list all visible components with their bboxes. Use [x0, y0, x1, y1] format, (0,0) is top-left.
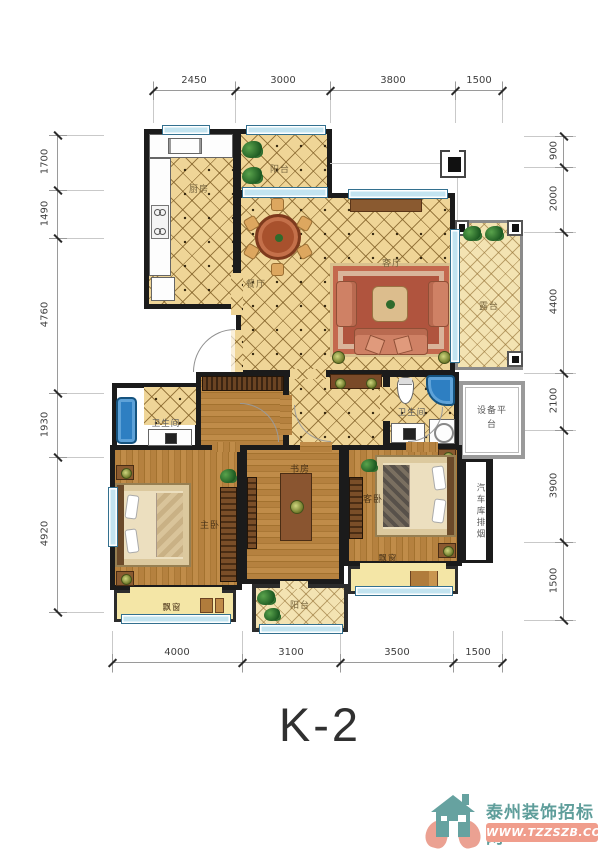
nightstand [438, 543, 456, 558]
plant-icon [361, 459, 377, 472]
dim-label: 1500 [549, 561, 560, 601]
dim-tick [455, 82, 456, 100]
opening-master-bay [130, 587, 222, 595]
label-bath-second: 卫生间 [385, 406, 439, 418]
dim-tick [49, 135, 67, 136]
opening-guest-bay [360, 563, 446, 571]
bath-main-sink [148, 429, 192, 446]
dim-tick [555, 542, 573, 543]
dim-tick [49, 457, 67, 458]
label-study: 书房 [278, 462, 322, 475]
opening-master-door [212, 442, 240, 452]
dim-tick [49, 238, 67, 239]
master-bed [115, 483, 191, 567]
stove-icon [151, 205, 169, 239]
dim-label: 2450 [181, 75, 206, 86]
leader-line [457, 177, 458, 220]
dim-label: 3800 [380, 75, 405, 86]
label-balcony-top: 阳台 [258, 162, 302, 175]
dim-label: 1500 [465, 647, 490, 658]
window [450, 229, 460, 363]
dining-chair [271, 263, 284, 276]
dim-tick [242, 654, 243, 672]
opening-study-door [300, 442, 332, 452]
dim-label: 4000 [164, 647, 189, 658]
study-desk [280, 473, 312, 541]
dim-tick [555, 430, 573, 431]
side-table [332, 351, 345, 364]
watermark-site-url: WWW.TZZSZB.COM [486, 823, 598, 842]
window [121, 614, 231, 624]
dim-tick [112, 654, 113, 672]
label-master-bedroom: 主卧 [188, 518, 232, 531]
shoe-cabinet [202, 376, 284, 391]
dimension-chain-top: 2450 3000 3800 1500 [153, 90, 502, 91]
label-balcony-bottom: 阳台 [278, 598, 322, 611]
fridge-icon [151, 277, 175, 301]
label-terrace: 露台 [467, 299, 511, 312]
dim-tick [330, 82, 331, 100]
dim-label: 3000 [270, 75, 295, 86]
nightstand [116, 571, 134, 586]
dim-tick [502, 82, 503, 100]
dimension-chain-bottom: 4000 3100 3500 1500 [112, 662, 502, 663]
opening-hall-entryhall [280, 395, 292, 435]
dim-tick [555, 620, 573, 621]
label-guest-bedroom: 客卧 [351, 492, 395, 505]
bay-slippers [200, 598, 213, 613]
dim-tick [555, 232, 573, 233]
room-terrace [455, 220, 523, 370]
dimension-chain-left: 1700 1490 4760 1930 4920 [57, 135, 58, 612]
label-bay-guest: 飘窗 [366, 552, 410, 564]
dim-label: 3500 [384, 647, 409, 658]
tv-cabinet-top [350, 199, 422, 212]
master-wardrobe [220, 487, 237, 582]
dim-tick [340, 654, 341, 672]
dim-tick [555, 373, 573, 374]
opening-guest-door [406, 442, 438, 452]
dim-label: 1700 [40, 142, 51, 182]
dim-tick [49, 190, 67, 191]
watermark-logo-icon [424, 794, 482, 848]
dim-tick [502, 654, 503, 672]
dim-label: 1490 [40, 194, 51, 234]
house-body-icon [436, 811, 470, 837]
label-living: 客厅 [370, 256, 414, 269]
dim-label: 1930 [40, 405, 51, 445]
dining-table [255, 214, 301, 260]
bay-slippers [215, 598, 224, 613]
bookshelf [247, 477, 257, 549]
house-chimney-icon [462, 794, 469, 805]
guest-wardrobe [349, 477, 363, 539]
label-kitchen: 厨房 [174, 182, 224, 195]
floorplan: 厨房 阳台 餐厅 客厅 露台 卫生间 卫生间 主卧 书房 客卧 阳台 飘窗 飘窗… [108, 125, 526, 635]
leader-line [330, 163, 440, 164]
kitchen-sink [168, 138, 202, 154]
label-bay-master: 飘窗 [150, 601, 194, 613]
dim-label: 3900 [549, 466, 560, 506]
window [246, 125, 326, 135]
dim-tick [453, 654, 454, 672]
plant-icon [220, 469, 236, 483]
label-dining: 餐厅 [234, 277, 278, 290]
label-bath-main: 卫生间 [136, 417, 196, 429]
dim-label: 4400 [549, 282, 560, 322]
sofa-main [354, 328, 428, 355]
floorplan-page: { "title": "K-2", "dimensions": { "top":… [0, 0, 600, 851]
plant-icon [257, 590, 275, 605]
dim-label: 3100 [278, 647, 303, 658]
bathtub [116, 397, 137, 444]
window [162, 125, 210, 135]
dimension-chain-right: 900 2000 4400 2100 3900 1500 [563, 136, 564, 620]
plant-icon [485, 226, 503, 241]
dim-label: 4760 [40, 295, 51, 335]
window [348, 189, 448, 199]
watermark: 泰州装饰招标网 WWW.TZZSZB.COM [424, 792, 596, 850]
plant-icon [463, 226, 481, 241]
plan-title: K-2 [0, 697, 600, 752]
window [259, 624, 343, 634]
dim-label: 4920 [40, 514, 51, 554]
dim-tick [49, 612, 67, 613]
entry-door-arc [193, 329, 235, 372]
column-marker [440, 150, 466, 178]
dim-label: 2100 [549, 381, 560, 421]
terrace-pillar [507, 220, 523, 236]
dim-tick [49, 393, 67, 394]
window [355, 586, 453, 596]
plant-icon [242, 141, 262, 158]
dim-label: 2000 [549, 179, 560, 219]
dim-label: 1500 [466, 75, 491, 86]
window [108, 487, 118, 547]
terrace-pillar [507, 351, 523, 367]
sofa-left [336, 281, 357, 327]
opening-living-hall [290, 369, 326, 379]
label-garage-flue: 汽车库排烟 [466, 465, 486, 559]
hall-console [330, 374, 382, 389]
dim-tick [235, 82, 236, 100]
dim-tick [153, 82, 154, 100]
dim-label: 900 [549, 131, 560, 171]
nightstand [116, 465, 134, 480]
window [242, 187, 328, 198]
label-equipment-platform: 设备平台 [474, 405, 510, 432]
dining-chair [271, 198, 284, 211]
sofa-right [428, 281, 449, 327]
opening-study-balcony [280, 581, 308, 589]
coffee-table [372, 286, 408, 322]
